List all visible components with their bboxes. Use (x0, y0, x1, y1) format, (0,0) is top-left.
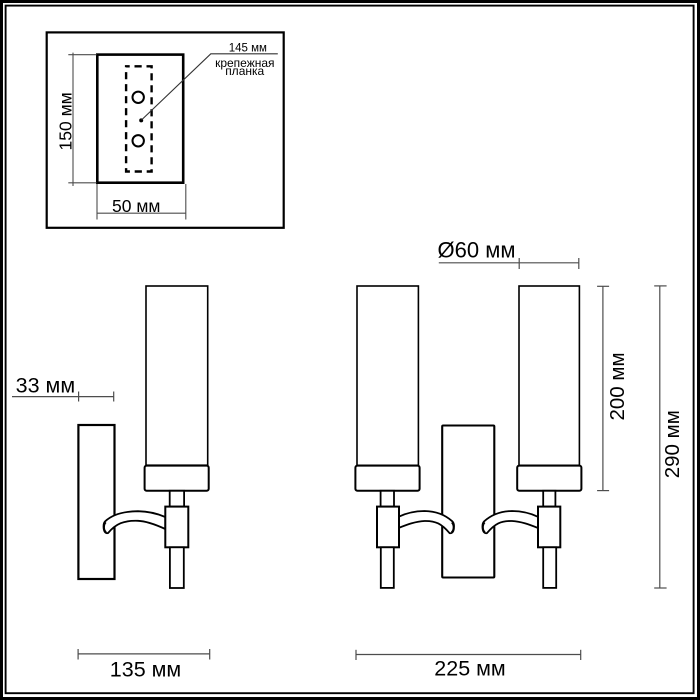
svg-text:150 мм: 150 мм (56, 92, 76, 150)
svg-text:145 мм: 145 мм (229, 43, 267, 55)
svg-text:Ø60 мм: Ø60 мм (438, 238, 516, 263)
svg-text:200 мм: 200 мм (606, 352, 629, 420)
svg-text:33 мм: 33 мм (16, 374, 75, 398)
svg-text:225 мм: 225 мм (434, 657, 505, 681)
svg-text:290 мм: 290 мм (661, 410, 684, 478)
svg-text:планка: планка (225, 64, 264, 78)
svg-text:135 мм: 135 мм (110, 657, 181, 681)
svg-text:50 мм: 50 мм (112, 196, 160, 216)
